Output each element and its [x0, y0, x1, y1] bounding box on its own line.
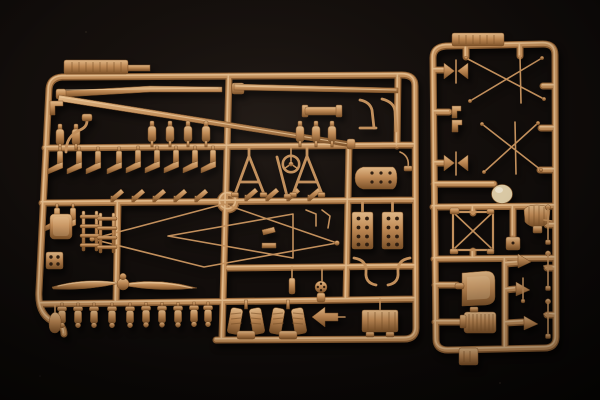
photo-stage: [0, 0, 600, 400]
sprue-photo: [0, 0, 600, 400]
vignette-overlay: [0, 0, 600, 400]
